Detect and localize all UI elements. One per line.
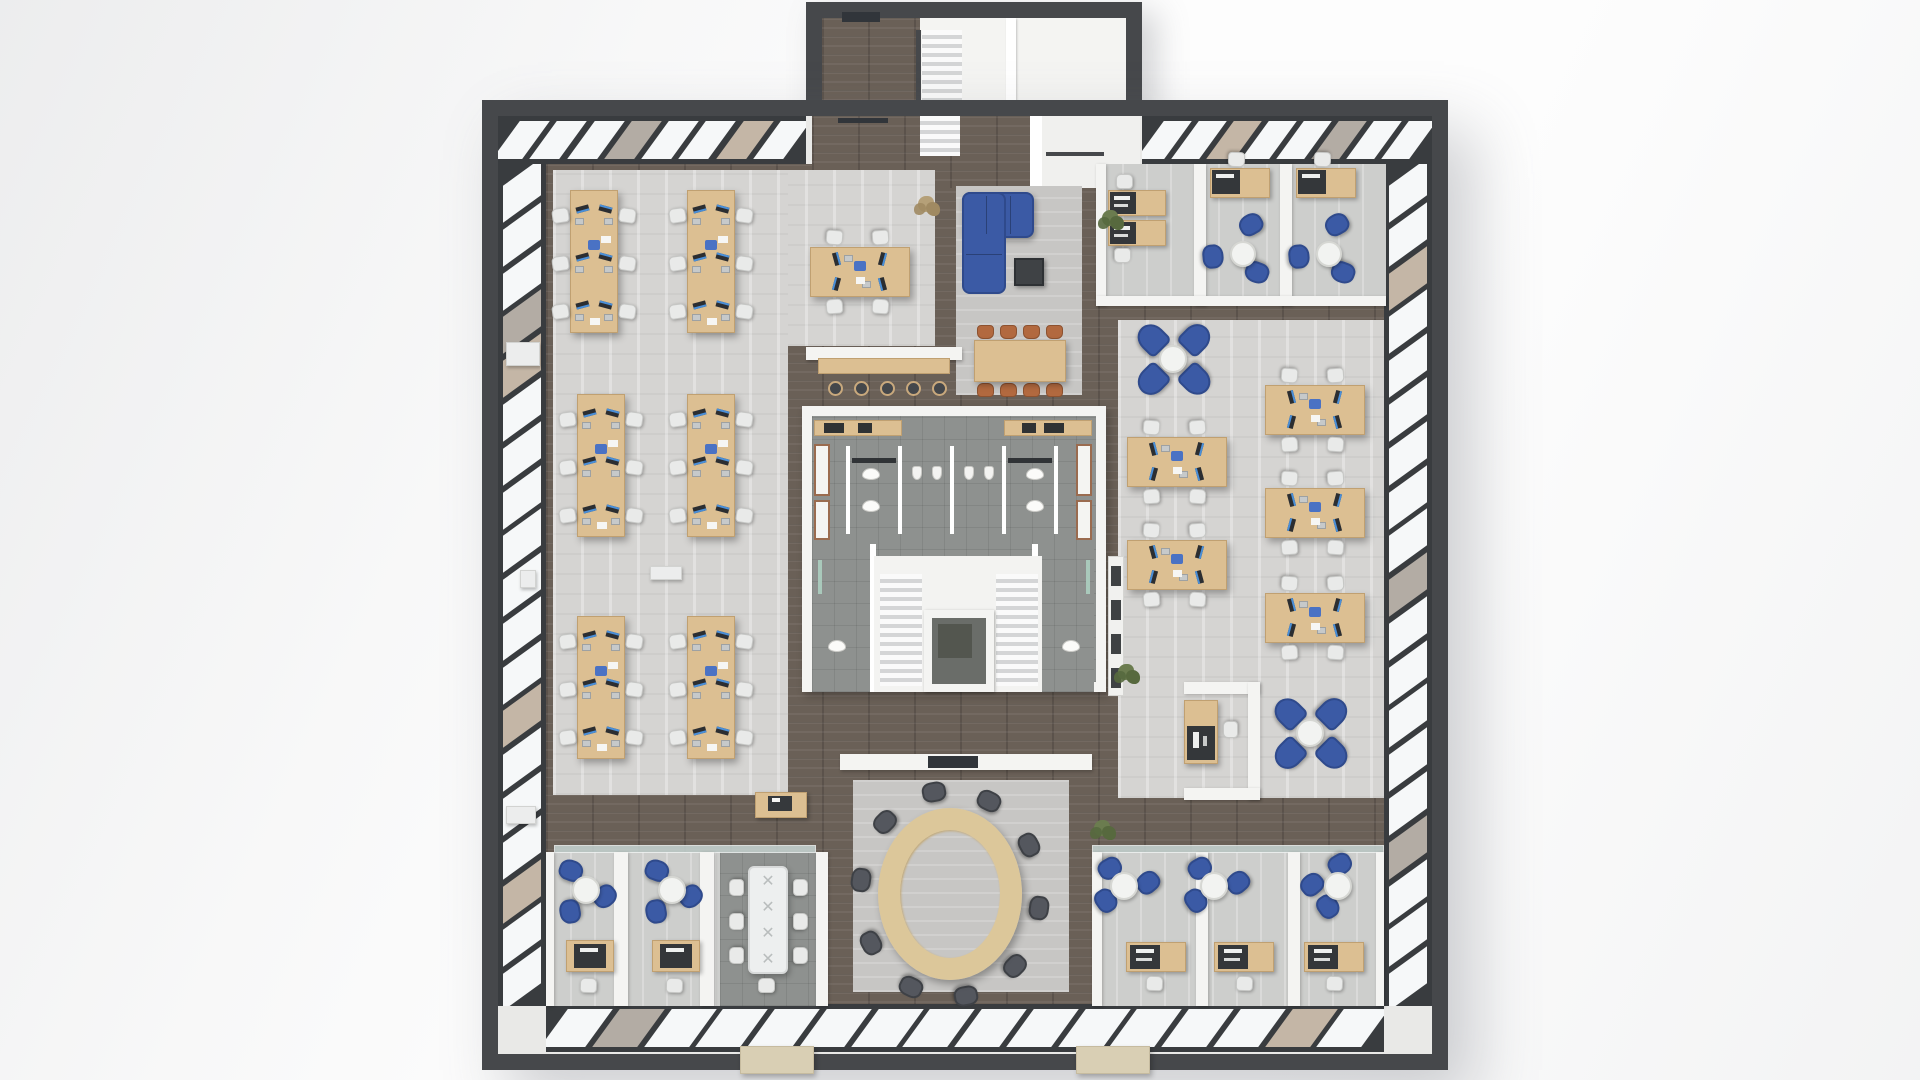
reception-monitor-white [1193,732,1199,748]
papers [597,522,607,529]
table-x-leg: ✕ [756,872,780,890]
laptop [721,692,730,699]
laptop [1299,601,1308,608]
office-chair [1146,976,1164,992]
notebook-blue [1309,399,1321,409]
laptop [604,266,613,273]
laptop [721,470,730,477]
office-chair [618,207,637,224]
papers [718,236,728,243]
office-chair [735,303,754,320]
office-chair [551,303,570,320]
toilet [1026,468,1044,480]
office-chair [1326,976,1344,992]
notebook-blue [1171,451,1183,461]
office-wall [614,852,628,1006]
window-band [546,1004,1384,1052]
coffee-table [1014,258,1044,286]
office-chair [625,507,644,524]
office-chair [793,947,808,964]
papers [608,662,618,669]
office-chair [625,633,644,650]
office-chair [729,947,744,964]
bar-stool [906,381,921,396]
papers [707,318,717,325]
dining-chair [1046,325,1063,339]
office-chair [735,411,754,428]
stall-back-wall [1008,458,1052,463]
papers [597,744,607,751]
office-chair [625,411,644,428]
toilet [862,468,880,480]
bar-stool [932,381,947,396]
laptop [692,218,701,225]
office-wall [546,852,554,1006]
office-chair [558,729,577,746]
entry-tower-divider-wall [1006,18,1016,106]
office-wall [1288,852,1300,1006]
desk-island-4 [810,247,910,297]
office-chair [1280,470,1298,486]
wall-unit [650,566,682,580]
notebook-blue [1171,554,1183,564]
entry-tower-stairs [922,30,962,108]
office-chair [625,729,644,746]
dining-chair [1000,325,1017,339]
office-chair [1188,591,1206,607]
office-chair [735,729,754,746]
bar-counter [818,358,950,374]
notebook-blue [705,666,717,676]
elevator-cab-floor [938,624,972,658]
office-chair [735,633,754,650]
office-chair [618,303,637,320]
papers [1311,518,1320,525]
plant [1102,826,1116,840]
office-chair [1314,152,1332,168]
stair-flight [996,574,1038,686]
papers [601,236,611,243]
laptop [575,266,584,273]
office-chair [668,207,687,224]
desk-monitor-white [1302,174,1320,178]
table-x-leg: ✕ [756,898,780,916]
locker-cabinet [1076,500,1092,540]
office-wall [1280,164,1292,306]
stair-flight [880,574,922,686]
notebook-blue [705,240,717,250]
storage-shelf [1111,600,1121,620]
notebook-blue [854,261,866,271]
office-chair [551,207,570,224]
laptop [692,422,701,429]
vestibule-glass-door [838,118,888,123]
entry-tower-wood [822,18,920,106]
papers [718,440,728,447]
laptop [692,518,701,525]
papers [856,277,865,284]
laptop [721,314,730,321]
office-chair [735,507,754,524]
toilet [1026,500,1044,512]
office-chair [1326,539,1344,555]
entry-step-mat [1076,1046,1150,1074]
papers [1311,623,1320,630]
desk-keyboard-white [1114,204,1128,207]
office-chair [1280,575,1298,591]
papers [707,522,717,529]
office-chair [825,298,843,314]
urinal [984,466,994,480]
office-chair [1280,644,1298,660]
stall-partition [898,446,902,534]
desk-island-4 [1265,385,1365,435]
office-chair [1280,539,1298,555]
stair-lobby-stairs [920,116,960,156]
desk-monitor-white [1314,949,1332,953]
laptop [611,644,620,651]
stall-partition [1002,446,1006,534]
printer-paper [772,798,780,802]
reception-wall [1248,682,1260,800]
office-chair [1280,436,1298,452]
plant [1110,216,1124,230]
notebook-blue [588,240,600,250]
counter-sink [1044,423,1064,433]
laptop [582,692,591,699]
office-chair [668,411,687,428]
plant [1126,670,1140,684]
storage-shelf [1111,634,1121,654]
stall-partition [950,446,954,534]
office-chair [1142,591,1160,607]
office-chair [558,411,577,428]
papers [1311,415,1320,422]
laptop [692,692,701,699]
office-chair [735,681,754,698]
wall-unit [520,570,536,588]
desk-island-4 [1265,593,1365,643]
office-chair [825,229,843,245]
desk-island-4 [1265,488,1365,538]
office-chair [735,207,754,224]
sofa-cushion-line [1010,196,1011,234]
oval-ring-table [878,808,1022,980]
reception-wall [1184,788,1260,800]
office-chair [558,459,577,476]
laptop [692,644,701,651]
office-chair [580,978,598,994]
office-chair [668,633,687,650]
locker-cabinet [1076,444,1092,496]
counter-sink [1022,423,1036,433]
laptop [582,470,591,477]
office-chair [558,681,577,698]
desk-monitor-white [1114,196,1130,200]
locker-cabinet [814,500,830,540]
round-table [1316,241,1342,267]
dining-chair [977,383,994,397]
office-chair [735,255,754,272]
entry-step-mat [740,1046,814,1074]
round-table [1296,719,1324,747]
notebook-blue [595,444,607,454]
laptop [692,470,701,477]
stall-partition [1054,446,1058,534]
toilet [1062,640,1080,652]
counter-sink [858,423,872,433]
stall-back-wall [852,458,896,463]
table-x-leg: ✕ [756,950,780,968]
office-chair [1188,488,1206,504]
sofa-cushion-line [986,196,987,234]
core-bottom-door [928,756,978,768]
round-table [1324,872,1352,900]
office-chair [558,507,577,524]
glass-front [554,845,816,853]
round-table [1159,345,1187,373]
laptop [721,422,730,429]
office-chair [668,303,687,320]
laptop [721,644,730,651]
notebook-blue [1309,607,1321,617]
office-chair [1228,152,1246,168]
glass-partition [818,560,822,594]
laptop [721,266,730,273]
toilet [828,640,846,652]
office-chair [668,255,687,272]
laptop [575,218,584,225]
office-chair [735,459,754,476]
urinal [932,466,942,480]
laptop [582,740,591,747]
glass-partition [1086,560,1090,594]
office-chair [625,459,644,476]
desk-monitor-white [1136,949,1154,953]
laptop [604,218,613,225]
desk-monitor-white [1216,174,1234,178]
notebook-blue [1309,502,1321,512]
locker-cabinet [814,444,830,496]
window-band [498,116,806,164]
toilet [862,500,880,512]
laptop [1161,548,1170,555]
office-chair [668,729,687,746]
laptop [604,314,613,321]
desk-keyboard-white [1114,234,1128,237]
office-chair [1188,419,1206,435]
round-table [1230,241,1256,267]
dining-chair [977,325,994,339]
round-table [572,876,600,904]
laptop [1299,393,1308,400]
office-chair [1142,488,1160,504]
papers [1173,467,1182,474]
desk-keyboard-white [1314,958,1330,961]
wall-unit [506,342,540,366]
office-chair [618,255,637,272]
office-chair [729,913,744,930]
office-chair [1326,436,1344,452]
desk-keyboard-white [1136,958,1152,961]
office-chair [1188,522,1206,538]
office-chair [871,229,889,245]
laptop [582,422,591,429]
office-chair [668,459,687,476]
office-chair [558,633,577,650]
laptop [844,255,853,262]
office-chair [1326,644,1344,660]
office-chair [758,978,775,993]
office-chair [1142,419,1160,435]
desk-island-4 [1127,540,1227,590]
office-wall [700,852,714,1006]
bar-stool [854,381,869,396]
window-band [1384,164,1432,1006]
office-chair [668,681,687,698]
laptop [611,740,620,747]
office-chair [1280,367,1298,383]
laptop [611,692,620,699]
office-chair [1142,522,1160,538]
dining-chair [1023,325,1040,339]
office-chair [1116,174,1133,189]
desk-monitor-white [666,948,684,952]
office-chair [1114,248,1131,263]
office-chair [625,681,644,698]
office-chair [551,255,570,272]
reception-panel [1187,726,1215,760]
office-wall [1096,296,1386,306]
office-wall [816,852,828,1006]
office-wall [1096,164,1106,306]
laptop [692,314,701,321]
laptop [575,314,584,321]
papers [707,744,717,751]
round-table [658,876,686,904]
laptop [721,218,730,225]
stall-partition [846,446,850,534]
counter-sink [824,423,844,433]
bar-stool [828,381,843,396]
papers [608,440,618,447]
office-chair [871,298,889,314]
stair-lobby-rail [1046,152,1104,156]
stair-railing [916,30,921,108]
office-wall [1194,164,1206,306]
dining-chair [1023,383,1040,397]
reception-keyboard-white [1203,736,1207,746]
office-chair [1326,470,1344,486]
office-chair [666,978,684,994]
office-chair [1223,721,1238,738]
dining-chair [1000,383,1017,397]
laptop [611,422,620,429]
laptop [1299,496,1308,503]
laptop [721,740,730,747]
papers [590,318,600,325]
laptop [611,470,620,477]
urinal [912,466,922,480]
window-band [1142,116,1432,164]
papers [1173,570,1182,577]
dining-table [974,340,1066,382]
office-chair [1326,367,1344,383]
office-wall [1376,852,1384,1006]
storage-shelf [1111,566,1121,586]
office-chair [1236,976,1254,992]
desk-monitor-white [1224,949,1242,953]
office-chair [729,879,744,896]
table-x-leg: ✕ [756,924,780,942]
floor-plan-canvas: ✕✕✕✕ [0,0,1920,1080]
entry-door [842,12,880,22]
laptop [582,644,591,651]
laptop [692,266,701,273]
office-chair [1326,575,1344,591]
notebook-blue [595,666,607,676]
desk-keyboard-white [1224,958,1240,961]
dining-chair [1046,383,1063,397]
laptop [1161,445,1170,452]
desk-island-4 [1127,437,1227,487]
sofa-blue [962,192,1006,294]
urinal [964,466,974,480]
office-chair [668,507,687,524]
desk-monitor-white [580,948,598,952]
office-chair [793,879,808,896]
laptop [721,518,730,525]
plant [926,202,940,216]
round-table [1200,872,1228,900]
laptop [692,740,701,747]
round-table [1110,872,1138,900]
laptop [611,518,620,525]
wall-unit [506,806,536,824]
sofa-cushion-line [966,254,1002,255]
laptop [582,518,591,525]
notebook-blue [705,444,717,454]
papers [718,662,728,669]
bar-stool [880,381,895,396]
office-chair [793,913,808,930]
vestibule-wall [1030,116,1042,188]
